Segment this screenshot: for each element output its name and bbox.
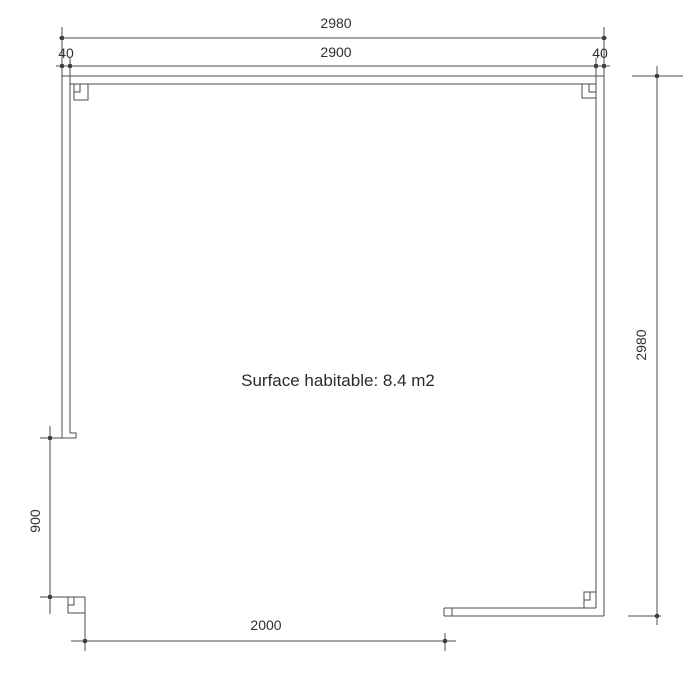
dim-label-overall-width: 2980 — [286, 16, 386, 30]
dim-marker-dot — [48, 595, 53, 600]
dim-label-front-opening: 2000 — [216, 618, 316, 632]
corner-notch-bottom-right — [584, 592, 596, 608]
dim-label-side-opening: 900 — [28, 496, 42, 546]
surface-area-label: Surface habitable: 8.4 m2 — [188, 371, 488, 391]
wall-bottom-end-cap — [444, 608, 452, 616]
dim-marker-dot — [594, 64, 599, 69]
dim-label-overall-height: 2980 — [634, 315, 648, 375]
dim-label-wall-thickness-right: 40 — [580, 46, 620, 60]
corner-notch-top-right — [582, 84, 596, 98]
dim-marker-dot — [48, 436, 53, 441]
dim-marker-dot — [655, 74, 660, 79]
dim-marker-dot — [443, 639, 448, 644]
corner-notch-top-left — [74, 84, 88, 100]
dim-label-inner-width: 2900 — [286, 45, 386, 59]
corner-post-bottom-left — [40, 597, 85, 651]
dim-marker-dot — [60, 64, 65, 69]
dim-marker-dot — [60, 36, 65, 41]
dim-marker-dot — [602, 64, 607, 69]
floor-plan-canvas: 2980 2900 40 40 2980 900 2000 Surface ha… — [0, 0, 700, 700]
wall-left-end-cap — [40, 433, 76, 438]
floor-plan-linework — [0, 0, 700, 700]
dim-marker-dot — [68, 64, 73, 69]
dim-marker-dot — [83, 639, 88, 644]
dim-marker-dot — [602, 36, 607, 41]
dim-label-wall-thickness-left: 40 — [46, 46, 86, 60]
dim-marker-dot — [655, 614, 660, 619]
